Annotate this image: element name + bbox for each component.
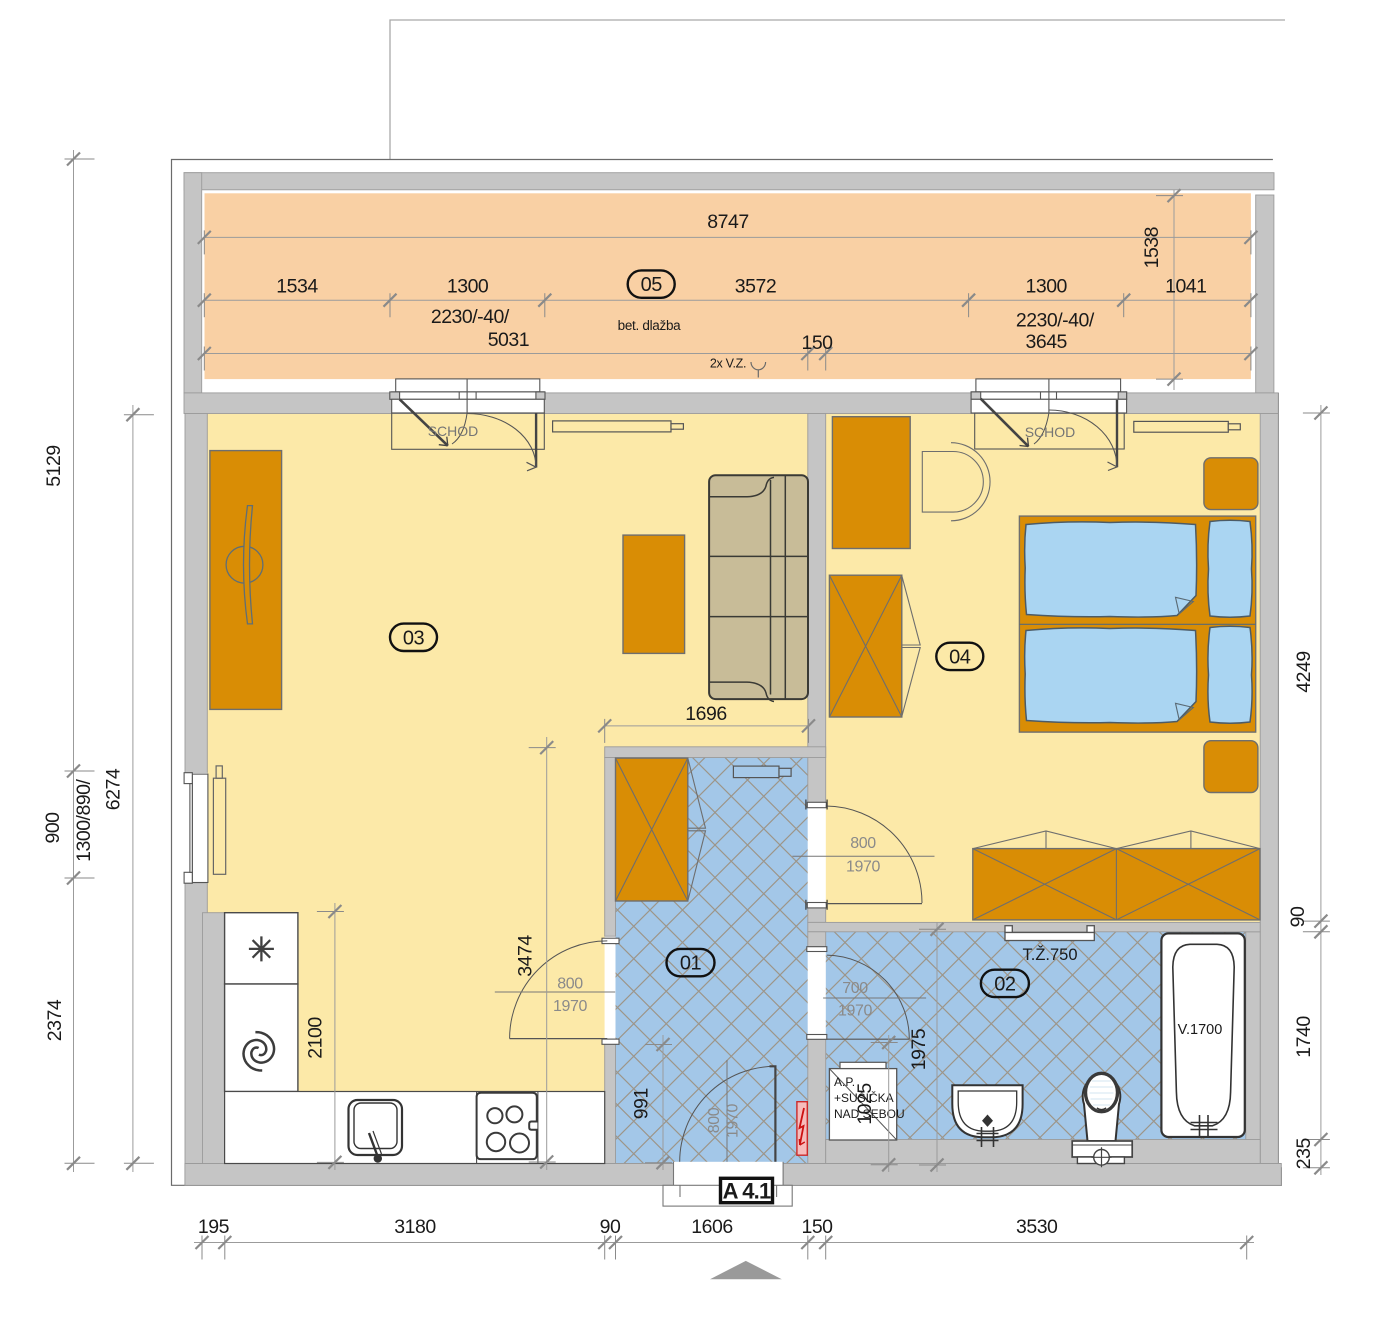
svg-text:1970: 1970 bbox=[838, 1003, 872, 1020]
svg-text:04: 04 bbox=[949, 646, 971, 668]
svg-text:1740: 1740 bbox=[1293, 1016, 1315, 1058]
svg-text:03: 03 bbox=[403, 627, 425, 649]
svg-text:150: 150 bbox=[801, 332, 833, 354]
svg-text:A.P.: A.P. bbox=[834, 1075, 855, 1089]
svg-text:2374: 2374 bbox=[44, 999, 66, 1041]
svg-text:3645: 3645 bbox=[1026, 331, 1068, 353]
svg-text:195: 195 bbox=[198, 1216, 230, 1238]
svg-text:5129: 5129 bbox=[43, 445, 65, 486]
svg-text:1970: 1970 bbox=[725, 1104, 742, 1138]
svg-text:6274: 6274 bbox=[103, 768, 125, 810]
svg-text:SCHOD: SCHOD bbox=[428, 423, 479, 439]
svg-text:2x V.Z.: 2x V.Z. bbox=[710, 357, 746, 371]
svg-text:05: 05 bbox=[641, 274, 663, 296]
svg-text:800: 800 bbox=[706, 1107, 723, 1133]
svg-text:1696: 1696 bbox=[685, 703, 726, 725]
svg-text:5031: 5031 bbox=[488, 329, 529, 351]
svg-text:800: 800 bbox=[850, 835, 876, 852]
svg-text:02: 02 bbox=[994, 973, 1016, 995]
svg-text:800: 800 bbox=[557, 976, 583, 993]
svg-text:3474: 3474 bbox=[515, 935, 537, 977]
svg-text:2230/-40/: 2230/-40/ bbox=[431, 306, 510, 328]
svg-text:1606: 1606 bbox=[691, 1216, 732, 1238]
svg-text:bet. dlažba: bet. dlažba bbox=[618, 318, 682, 333]
svg-text:8747: 8747 bbox=[707, 211, 748, 233]
svg-text:1534: 1534 bbox=[276, 276, 318, 298]
svg-text:1025: 1025 bbox=[854, 1083, 876, 1125]
svg-text:90: 90 bbox=[600, 1216, 621, 1238]
svg-text:991: 991 bbox=[630, 1088, 652, 1119]
svg-text:1538: 1538 bbox=[1141, 227, 1163, 268]
svg-text:4249: 4249 bbox=[1293, 651, 1315, 692]
svg-text:3572: 3572 bbox=[735, 276, 776, 298]
svg-text:SCHOD: SCHOD bbox=[1025, 424, 1076, 440]
svg-text:1300: 1300 bbox=[1026, 276, 1068, 298]
svg-text:900: 900 bbox=[42, 812, 64, 844]
svg-text:150: 150 bbox=[801, 1216, 833, 1238]
svg-text:01: 01 bbox=[680, 953, 702, 975]
svg-text:2230/-40/: 2230/-40/ bbox=[1016, 309, 1095, 331]
svg-text:3530: 3530 bbox=[1016, 1216, 1058, 1238]
svg-text:T.Ž.750: T.Ž.750 bbox=[1022, 945, 1077, 964]
svg-text:A 4.1: A 4.1 bbox=[723, 1179, 771, 1204]
svg-text:1041: 1041 bbox=[1165, 276, 1206, 298]
svg-text:1970: 1970 bbox=[553, 998, 587, 1015]
svg-text:1970: 1970 bbox=[846, 859, 880, 876]
svg-text:1300: 1300 bbox=[447, 276, 489, 298]
svg-text:2100: 2100 bbox=[305, 1017, 327, 1059]
svg-text:700: 700 bbox=[842, 980, 868, 997]
svg-text:235: 235 bbox=[1293, 1138, 1315, 1170]
svg-text:3180: 3180 bbox=[394, 1216, 436, 1238]
svg-text:1975: 1975 bbox=[908, 1028, 930, 1070]
svg-text:1300/890/: 1300/890/ bbox=[73, 779, 95, 862]
svg-text:V.1700: V.1700 bbox=[1178, 1022, 1223, 1038]
svg-text:90: 90 bbox=[1287, 906, 1309, 927]
